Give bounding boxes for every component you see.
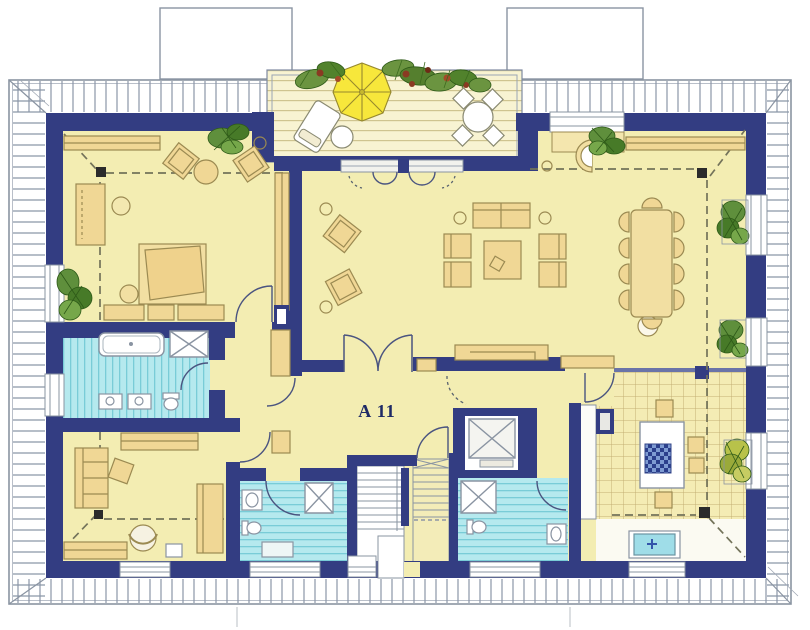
svg-text:A 11: A 11 [358, 401, 396, 421]
